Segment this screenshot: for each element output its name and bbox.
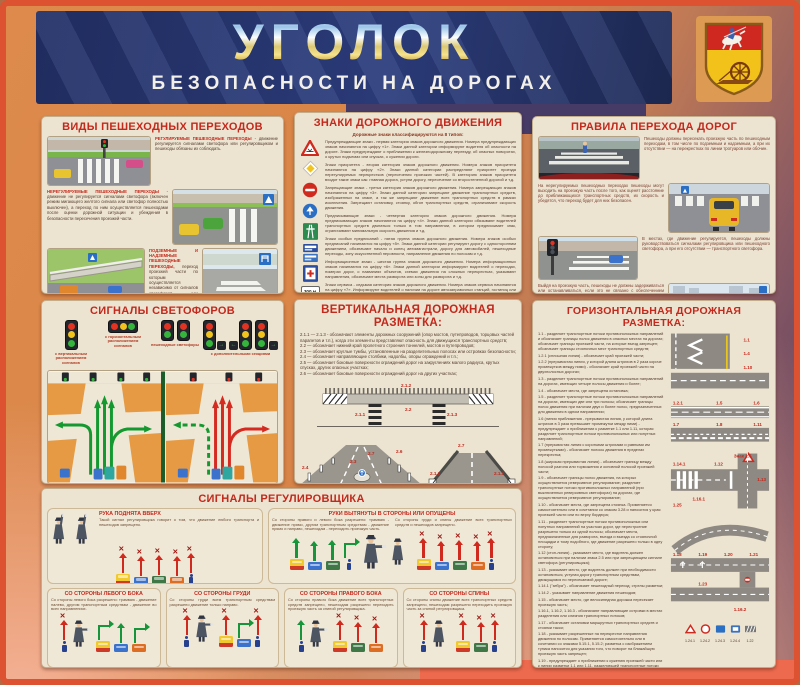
tram-icon	[219, 613, 233, 647]
light-caption: с горизонтальным расположением сигналов	[99, 335, 147, 349]
crossing-text: переход проезжей части по которым осущес…	[149, 264, 198, 294]
panel-title: ВЕРТИКАЛЬНАЯ ДОРОЖНАЯ РАЗМЕТКА:	[300, 304, 516, 330]
section-text-left: Со стороны правого и левого бока разреше…	[272, 518, 389, 533]
light-caption: пешеходные светофоры	[151, 343, 199, 348]
car-icon	[134, 554, 148, 584]
sign-label: 1.24.2	[700, 639, 711, 643]
panel-title: ВИДЫ ПЕШЕХОДНЫХ ПЕРЕХОДОВ	[47, 121, 278, 134]
car-icon	[114, 621, 128, 652]
pedestrian-icon	[298, 618, 304, 652]
sign-label: 1.24.3	[715, 639, 726, 643]
duplicate-signs-row: 1.24.1 1.24.2 1.24.3 1.24.4	[685, 621, 756, 643]
marking-label: 2.7	[368, 451, 375, 456]
marking-item: 1.13 - указывает место, где водитель дол…	[538, 567, 664, 582]
marking-item: 1.17 - обозначает остановки маршрутных т…	[538, 620, 664, 630]
pedestrian-icon	[255, 613, 261, 647]
marking-item: 1.12 (стоп-линия) - указывает место, где…	[538, 550, 664, 565]
red-light-illustration	[538, 236, 638, 280]
panel-title: ЗНАКИ ДОРОЖНОГО ДВИЖЕНИЯ	[300, 117, 516, 130]
underpass-illustration	[202, 248, 278, 294]
section-heading: РУКИ ВЫТЯНУТЫ В СТОРОНЫ ИЛИ ОПУЩЕНЫ	[272, 511, 512, 517]
marking-label: 1.20	[724, 552, 733, 557]
safety-corner-poster: УГОЛОК БЕЗОПАСНОСТИ НА ДОРОГАХ ВИДЫ ПЕШЕ…	[0, 0, 800, 685]
marking-label: 1.12	[714, 461, 723, 466]
light-caption: с вертикальным расположением сигналов	[47, 352, 95, 366]
marking-label: 2.3	[350, 459, 357, 464]
tram-icon	[456, 618, 470, 652]
marking-item: 1.2.2 (прерывистая линия, у которой длин…	[538, 359, 664, 374]
light-with-section-icon: →	[255, 320, 278, 350]
sign-category-paragraph: Знаки особых предписаний - пятая группа …	[325, 236, 516, 256]
policeman-icon	[390, 532, 411, 570]
policeman-arm-up-icon	[51, 511, 72, 549]
panel-title: СИГНАЛЫ РЕГУЛИРОВЩИКА	[47, 493, 516, 506]
crossing-text: - движение не регулируется сигналами све…	[47, 189, 168, 221]
tram-icon	[290, 536, 304, 570]
marking-item: 1.16.1, 1.16.2, 1.16.3 - обозначают напр…	[538, 608, 664, 618]
information-sign-icon	[301, 244, 319, 262]
marking-label: 2.1.1	[355, 412, 366, 417]
panel-controller-signals: СИГНАЛЫ РЕГУЛИРОВЩИКА РУКА ПОДНЯТА ВВЕРХ…	[41, 488, 522, 668]
pedestrian-light-icon	[177, 320, 190, 342]
crossing-item-text: ПОДЗЕМНЫЕ И НАДЗЕМНЫЕ ПЕШЕХОДНЫЕ ПЕРЕХОД…	[149, 248, 198, 294]
section-heading: СО СТОРОНЫ ЛЕВОГО БОКА	[51, 591, 157, 597]
panel-crossing-rules: ПРАВИЛА ПЕРЕХОДА ДОРОГ Пешеходы должны п…	[532, 116, 776, 294]
special-prescription-sign-icon	[301, 223, 319, 241]
section-text: Со стороны спины движение всех транспорт…	[407, 598, 513, 613]
section-heading: СО СТОРОНЫ ПРАВОГО БОКА	[288, 591, 394, 597]
interchange-diagram: 1.18 1.19 1.20 1.21 1.23 1.16.2	[669, 516, 771, 616]
marking-label: 1.10	[744, 365, 753, 370]
marking-item: 1.8 (широкая прерывистая линия) - обозна…	[538, 459, 664, 474]
car-icon	[435, 539, 449, 570]
section-text-right: Со стороны груди и спины движение всех т…	[395, 518, 512, 533]
marking-label: 2.1.3	[447, 412, 458, 417]
policeman-arm-side-icon	[71, 614, 92, 652]
car-icon	[308, 539, 322, 570]
marking-item: 1.5 - разделяет транспортные потоки прот…	[538, 394, 664, 414]
controller-section-arms-out: РУКИ ВЫТЯНУТЫ В СТОРОНЫ ИЛИ ОПУЩЕНЫ Со с…	[268, 508, 516, 584]
truck-icon	[152, 553, 166, 584]
route-number-icon	[745, 624, 756, 634]
sign-category-paragraph: Запрещающие знаки - третья категория зна…	[325, 185, 516, 211]
policeman-arm-side-icon	[361, 532, 388, 570]
car-icon	[369, 621, 383, 652]
intersection-diagram	[47, 370, 278, 484]
city-crossing-illustration	[668, 283, 770, 294]
car-icon	[237, 614, 251, 647]
marking-label: Знак 2.5	[734, 454, 752, 459]
pedestrian-icon	[61, 618, 67, 652]
controller-section-hand-up: РУКА ПОДНЯТА ВВЕРХ Такой сигнал регулиро…	[47, 508, 263, 584]
pedestrian-icon	[492, 618, 498, 652]
stop-line-diagram: 1.14.1 1.12 Знак 2.5 1.13 1.16.1 1.25	[669, 451, 771, 511]
warning-sign-icon	[301, 139, 319, 157]
policeman-arm-up-icon	[74, 511, 95, 549]
marking-item: 1.10 - обозначает места, где запрещена с…	[538, 502, 664, 517]
rule-text: Пешеходы должны пересекать проезжую част…	[644, 136, 770, 152]
marking-label: 2.1.3	[494, 471, 505, 476]
crest-icon	[702, 20, 766, 98]
car-icon	[170, 554, 184, 584]
vertical-marking-list: 2.1.1 — 2.1.3 - обозначают элементы доро…	[300, 332, 516, 376]
marking-item: 1.3 - разделяет транспортные потоки прот…	[538, 376, 664, 386]
vertical-traffic-light-icon	[65, 320, 78, 350]
title-banner: УГОЛОК БЕЗОПАСНОСТИ НА ДОРОГАХ	[36, 11, 672, 104]
marking-item: 1.14.1 ("зебра") - обозначает пешеходный…	[538, 583, 664, 588]
marking-item: 1.14.2 - указывает направление движения …	[538, 590, 664, 595]
truck-icon	[326, 538, 340, 570]
marking-label: 1.1	[744, 338, 751, 343]
marking-circle-icon	[700, 624, 711, 634]
policeman-arm-side-icon	[194, 609, 215, 647]
marking-label: 1.16.2	[734, 607, 747, 612]
panel-traffic-lights: СИГНАЛЫ СВЕТОФОРОВ с вертикальным распол…	[41, 300, 284, 484]
light-with-section-icon: →	[203, 320, 226, 350]
sign-category-paragraph: Предупреждающие знаки - первая категория…	[325, 139, 516, 159]
marking-label: 1.23	[698, 582, 707, 587]
car-icon	[471, 539, 485, 570]
pedestrian-icon	[188, 551, 194, 584]
marking-label: 1.13	[757, 477, 766, 482]
light-caption: с дополнительными секциями	[211, 352, 271, 357]
sign-label: 1.24.4	[730, 639, 741, 643]
mandatory-sign-icon	[301, 202, 319, 220]
red-signal-intersection	[166, 372, 278, 482]
section-heading: РУКА ПОДНЯТА ВВЕРХ	[99, 511, 259, 517]
horizontal-marking-list: 1.1 - разделяет транспортные потоки прот…	[538, 331, 664, 668]
crossing-item-text: РЕГУЛИРУЕМЫЕ ПЕШЕХОДНЫЕ ПЕРЕХОДЫ - движе…	[155, 136, 278, 152]
pedestrian-icon	[344, 534, 355, 570]
policeman-back-icon	[431, 614, 452, 652]
tram-icon	[96, 616, 110, 652]
service-sign-icon	[301, 265, 319, 283]
bridge-diagram: 2.1.1 2.1.2 2.1.3 2.2	[313, 378, 503, 430]
tram-icon	[333, 618, 347, 652]
panel-road-signs: ЗНАКИ ДОРОЖНОГО ДВИЖЕНИЯ Дорожные знаки …	[294, 112, 522, 293]
panel-title: ПРАВИЛА ПЕРЕХОДА ДОРОГ	[538, 121, 770, 134]
marking-item: 1.4 - обозначает места, где запрещена ос…	[538, 388, 664, 393]
marking-label: 1.6	[753, 400, 760, 405]
marking-item: 1.1 - разделяет транспортные потоки прот…	[538, 331, 664, 351]
rule-text: На нерегулируемых пешеходных переходах п…	[538, 183, 664, 204]
tram-icon	[417, 536, 431, 570]
pedestrian-icon	[421, 618, 427, 652]
marking-label: 2.1.2	[401, 383, 412, 388]
junction-diagram: 1.1 1.4 1.10	[669, 331, 771, 393]
rule-text: Выйдя на проезжую часть, пешеходы не дол…	[538, 283, 664, 294]
controller-section-chest: СО СТОРОНЫ ГРУДИ Со стороны груди всем т…	[166, 588, 280, 668]
section-text: Со стороны правого бока движение всех тр…	[288, 598, 394, 613]
marking-label: 1.14.1	[673, 461, 686, 466]
car-rear-illustration	[668, 183, 770, 233]
marking-label: 1.18	[673, 552, 682, 557]
regulated-crossing-illustration	[47, 136, 151, 186]
marking-item: 1.18 - указывает разрешенные на перекрес…	[538, 631, 664, 656]
marking-label: 1.2.1	[673, 400, 684, 405]
marking-triangle-icon	[685, 624, 696, 634]
lane-lines-diagram: 1.2.1 1.5 1.6 1.7 1.8 1.11	[669, 398, 771, 446]
controller-section-back: СО СТОРОНЫ СПИНЫ Со стороны спины движен…	[403, 588, 517, 668]
sign-label: 1.22	[745, 639, 756, 643]
truck-icon	[351, 620, 365, 652]
panel-horizontal-marking: ГОРИЗОНТАЛЬНАЯ ДОРОЖНАЯ РАЗМЕТКА: 1.1 - …	[532, 300, 776, 668]
truck-icon	[453, 538, 467, 570]
policeman-arm-side-icon	[308, 614, 329, 652]
marking-label: 1.8	[716, 422, 723, 427]
marking-label: 2.2	[405, 407, 412, 412]
marking-item: 1.19 - предупреждает о приближении к суж…	[538, 658, 664, 668]
priority-sign-icon	[301, 160, 319, 178]
truck-icon	[474, 620, 488, 652]
marking-label: 1.5	[716, 400, 723, 405]
marking-label: 2.7	[458, 443, 465, 448]
poster-subtitle: БЕЗОПАСНОСТИ НА ДОРОГАХ	[36, 73, 672, 95]
marking-plate-icon	[730, 624, 741, 634]
green-signal-intersection	[48, 372, 161, 482]
marking-item: 1.6 (линия приближения - прерывистая лин…	[538, 416, 664, 441]
marking-label: 1.16.1	[693, 497, 706, 502]
controller-section-right-side: СО СТОРОНЫ ПРАВОГО БОКА Со стороны право…	[284, 588, 398, 668]
crossing-heading: НЕРЕГУЛИРУЕМЫЕ ПЕШЕХОДНЫЕ ПЕРЕХОДЫ	[47, 189, 159, 194]
crossing-item-text: НЕРЕГУЛИРУЕМЫЕ ПЕШЕХОДНЫЕ ПЕРЕХОДЫ - дви…	[47, 189, 168, 221]
section-text: Такой сигнал регулировщика говорит о том…	[99, 518, 259, 528]
marking-label: 1.25	[673, 503, 682, 508]
poster-title: УГОЛОК	[36, 13, 672, 71]
panel-title: СИГНАЛЫ СВЕТОФОРОВ	[47, 305, 278, 318]
signs-paragraphs: Предупреждающие знаки - первая категория…	[325, 139, 516, 293]
pedestrian-light-icon	[161, 320, 174, 342]
marking-plate-icon	[715, 624, 726, 634]
marking-item: 1.7 (прерывистая линия с короткими штрих…	[538, 442, 664, 457]
unregulated-crossing-illustration	[172, 189, 278, 245]
horizontal-traffic-light-icon	[108, 320, 138, 333]
section-heading: СО СТОРОНЫ СПИНЫ	[407, 591, 513, 597]
sign-label: 1.24.1	[685, 639, 696, 643]
panel-vertical-marking: ВЕРТИКАЛЬНАЯ ДОРОЖНАЯ РАЗМЕТКА: 2.1.1 — …	[294, 299, 522, 484]
marking-item: 2.5 — обозначает боковые поверхности огр…	[300, 360, 516, 371]
marking-label: 1.7	[673, 422, 680, 427]
marking-label: 1.21	[749, 552, 758, 557]
panel-crossing-types: ВИДЫ ПЕШЕХОДНЫХ ПЕРЕХОДОВ РЕГУЛИРУЕМЫЕ П…	[41, 116, 284, 294]
section-text: Со стороны груди всем транспортным средс…	[170, 598, 276, 608]
pedestrian-icon	[184, 613, 190, 647]
road-rails-diagram: 2.1.1 2.7 2.1.3	[428, 439, 516, 484]
sign-category-paragraph: Знаки сервиса - седьмая категория знаков…	[325, 282, 516, 293]
marking-label: 1.4	[744, 351, 751, 356]
light-with-section-icon: ←	[229, 320, 252, 350]
windshield-view-illustration	[538, 136, 640, 180]
marking-item: 2.1.1 — 2.1.3 - обозначают элементы доро…	[300, 332, 516, 343]
sign-category-paragraph: Знаки приоритета - вторая категория знак…	[325, 162, 516, 182]
marking-item: 1.15 - обозначает место, где велосипедна…	[538, 597, 664, 607]
car-icon	[132, 619, 146, 652]
panel-title: ГОРИЗОНТАЛЬНАЯ ДОРОЖНАЯ РАЗМЕТКА:	[538, 305, 770, 329]
marking-label: 1.11	[753, 422, 762, 427]
sign-category-paragraph: Предписывающие знаки - четвертая категор…	[325, 213, 516, 233]
section-heading: СО СТОРОНЫ ГРУДИ	[170, 591, 276, 597]
marking-label: 2.6	[396, 449, 403, 454]
marking-label: 1.19	[698, 552, 707, 557]
marking-item: 1.9 - обозначает границы полос движения,…	[538, 475, 664, 500]
rule-text: В местах, где движение регулируется, пеш…	[642, 236, 770, 252]
marking-label: 2.4	[302, 465, 309, 470]
coat-of-arms	[696, 16, 772, 102]
crossing-heading: РЕГУЛИРУЕМЫЕ ПЕШЕХОДНЫЕ ПЕРЕХОДЫ	[155, 136, 252, 141]
controller-section-left-side: СО СТОРОНЫ ЛЕВОГО БОКА Со стороны левого…	[47, 588, 161, 668]
pedestrian-icon	[489, 536, 495, 570]
section-text: Со стороны левого бока разрешено: трамва…	[51, 598, 157, 613]
no-entry-sign-icon	[301, 181, 319, 199]
road-posts-diagram: 2.4 2.3 2.7 2.6 2.5	[300, 435, 422, 484]
marking-item: 1.2.1 (сплошная линия) - обозначает край…	[538, 353, 664, 358]
overpass-illustration	[47, 248, 145, 294]
sign-category-paragraph: Информационные знаки - шестая группа зна…	[325, 259, 516, 279]
signs-subtitle: Дорожные знаки классифицируются на 8 тип…	[300, 132, 516, 137]
marking-label: 2.1.1	[430, 471, 441, 476]
tram-icon	[116, 551, 130, 584]
additional-plate-icon: 300 м	[301, 286, 320, 293]
marking-item: 1.11 - разделяет транспортные потоки про…	[538, 519, 664, 549]
